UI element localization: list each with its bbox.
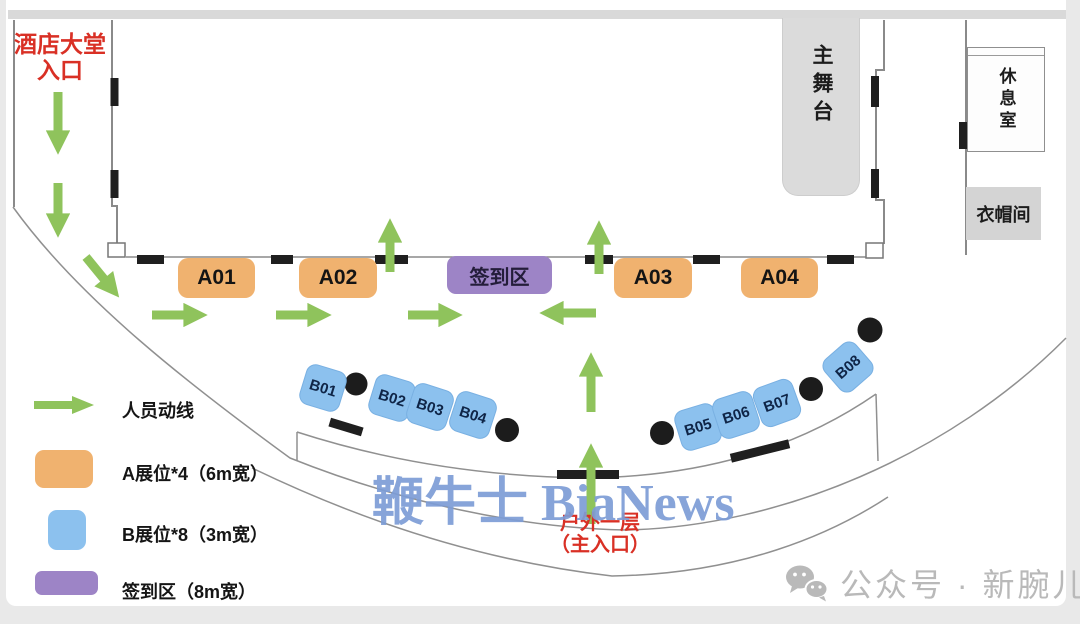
booth-a02: A02 <box>299 258 377 298</box>
hall-left-wall <box>112 20 117 243</box>
door-hall-right-2 <box>871 169 879 198</box>
door-left-wall-2 <box>111 170 119 198</box>
legend-booth-b-label: B展位*8（3m宽） <box>122 521 268 547</box>
booth-b04-label: B04 <box>457 403 488 428</box>
booth-a03-label: A03 <box>634 266 673 290</box>
flow-arrow-diagonal <box>86 257 113 290</box>
door-arc-right <box>730 439 790 462</box>
booth-b-swatch-icon <box>48 510 86 550</box>
flow-arrow-icon <box>32 396 94 414</box>
wechat-icon <box>784 564 830 602</box>
checkin-area: 签到区 <box>447 256 552 294</box>
door-bottom-5 <box>693 255 720 264</box>
main-stage-label: 主舞台 <box>806 18 836 195</box>
hall-right-wall <box>876 20 884 244</box>
checkin-area-label: 签到区 <box>470 261 530 290</box>
booth-b03-label: B03 <box>414 395 445 420</box>
checkin-swatch-icon <box>35 571 98 595</box>
booth-a-swatch-icon <box>35 450 93 488</box>
main-stage: 主舞台 <box>782 18 860 196</box>
hotel-lobby-entrance-line2: 入口 <box>8 58 112 84</box>
lounge-room-top-line <box>968 55 1044 56</box>
booth-a04-label: A04 <box>760 266 799 290</box>
flow-arrow-icon-shaft <box>34 401 72 409</box>
legend-flow-label: 人员动线 <box>122 397 194 423</box>
door-bottom-1 <box>137 255 164 264</box>
hotel-lobby-entrance-label: 酒店大堂 入口 <box>8 32 112 84</box>
door-hall-right-1 <box>871 76 879 107</box>
watermark: 鞭牛士 BiaNews <box>372 460 735 535</box>
booth-b06-label: B06 <box>720 403 751 428</box>
booth-a03: A03 <box>614 258 692 298</box>
footer-publisher: 公众号 · 新腕儿 <box>784 560 1080 606</box>
door-bottom-2 <box>271 255 293 264</box>
column-right <box>866 243 883 258</box>
pillar-4 <box>799 377 823 401</box>
column-left <box>108 243 125 257</box>
legend-checkin-label: 签到区（8m宽） <box>122 578 256 604</box>
booth-b07-label: B07 <box>761 390 793 415</box>
booth-b01-label: B01 <box>307 376 338 400</box>
flow-arrow-icon-head <box>72 396 94 414</box>
cloakroom: 衣帽间 <box>966 187 1041 240</box>
booth-a01-label: A01 <box>197 266 236 290</box>
lounge-room: 休息室 <box>967 47 1045 152</box>
hotel-lobby-entrance-line1: 酒店大堂 <box>8 32 112 58</box>
pillar-2 <box>495 418 519 442</box>
booth-a04: A04 <box>741 258 818 298</box>
footer-publisher-text: 公众号 · 新腕儿 <box>840 560 1080 606</box>
lounge-room-label: 休息室 <box>994 67 1019 133</box>
legend-booth-a-label: A展位*4（6m宽） <box>122 460 268 486</box>
pillar-5 <box>858 318 883 343</box>
cloakroom-label: 衣帽间 <box>977 201 1031 227</box>
booth-b02-label: B02 <box>376 386 407 410</box>
booth-b08-label: B08 <box>832 352 864 383</box>
outdoor-entrance-line2: （主入口） <box>518 534 682 556</box>
door-bottom-6 <box>827 255 854 264</box>
door-outer-right <box>959 122 967 149</box>
booth-a01: A01 <box>178 258 255 298</box>
platform-step-right <box>876 394 878 461</box>
booth-b05-label: B05 <box>682 415 713 439</box>
door-arc-left <box>328 418 363 437</box>
pillar-1 <box>345 373 368 396</box>
booth-a02-label: A02 <box>319 266 358 290</box>
pillar-3 <box>650 421 674 445</box>
